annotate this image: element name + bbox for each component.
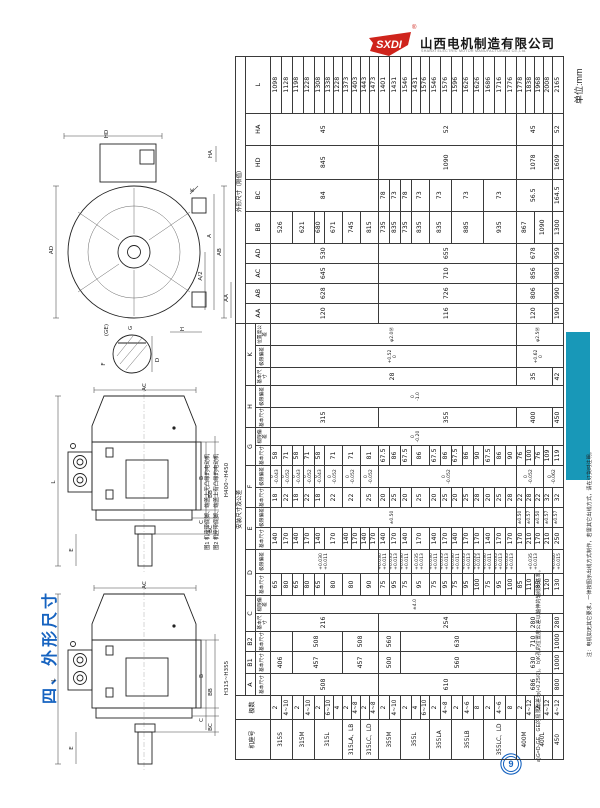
frame-size-cell: 315LC、LD — [361, 720, 379, 760]
frame-size-cell: 315L — [314, 720, 343, 760]
table-cell: 530 — [271, 243, 379, 263]
shaft — [138, 732, 152, 764]
table-cell: 140 — [271, 528, 282, 550]
poles-cell: 8 — [506, 696, 517, 720]
frame-size-cell: 355LB — [451, 720, 484, 760]
table-cell: 22 — [535, 488, 544, 508]
table-cell: 815 — [361, 211, 379, 243]
table-cell: 140 — [314, 528, 325, 550]
table-cell: 80 — [303, 574, 314, 596]
poles-cell: 4~8 — [352, 696, 361, 720]
table-cell: 1609 — [553, 145, 564, 179]
frame-size-cell: 355LC、LD — [484, 720, 517, 760]
front-view-drawing: HD AD HA K AB A A/2 AA H (GE) G F D — [44, 124, 236, 387]
poles-cell: 2 — [343, 696, 352, 720]
frame-size-cell: 355LA — [430, 720, 452, 760]
table-cell: 671 — [325, 211, 343, 243]
poles-cell: 4~6 — [462, 696, 473, 720]
company-name-en: SHANXI ELECTRIC MOTOR MANUFACTURING Co.,… — [421, 49, 527, 53]
dim-label-ac: AC — [142, 383, 148, 391]
table-cell: 73 — [484, 179, 517, 211]
poles-cell: 2 — [401, 696, 412, 720]
table-cell: 71 — [325, 446, 343, 466]
table-cell: 25 — [361, 488, 379, 508]
dimensions-table-area: 机座号极数安装尺寸及公差外形尺寸（限值）AB1B2CDEFGHKAAABACAD… — [235, 57, 532, 760]
table-cell: 170 — [517, 528, 526, 550]
table-cell: 1228 — [303, 56, 314, 113]
table-cell: 140 — [361, 528, 370, 550]
frame-size-cell: 315M — [292, 720, 314, 760]
table-cell: 120 — [544, 574, 553, 596]
table-cell: +0.035+0.013 — [506, 550, 517, 574]
header-cell: 基本尺寸 — [256, 488, 271, 508]
table-cell: 835 — [430, 211, 452, 243]
table-cell: 835 — [412, 211, 430, 243]
table-cell: 2165 — [553, 56, 564, 113]
poles-cell: 2 — [451, 696, 462, 720]
table-cell: 120 — [517, 303, 553, 323]
table-cell: 85 — [517, 574, 526, 596]
table-cell: 959 — [553, 243, 564, 263]
table-cell: 140 — [451, 528, 462, 550]
dim-label-c: C — [199, 718, 205, 722]
table-cell: 25 — [412, 488, 430, 508]
table-cell: 22 — [517, 488, 526, 508]
table-cell: ±0.50 — [535, 508, 544, 528]
table-cell: 109 — [544, 446, 553, 466]
dim-label-ge: (GE) — [104, 324, 110, 336]
table-cell: 745 — [343, 211, 361, 243]
table-cell: 86 — [390, 446, 401, 466]
table-cell: 0-0.043 — [314, 466, 325, 488]
table-cell: ±0.50 — [517, 508, 526, 528]
table-cell: 1000 — [553, 652, 564, 674]
header-cell: 基本尺寸 — [256, 446, 271, 466]
dim-label-a2: A/2 — [198, 271, 204, 280]
table-cell: 990 — [553, 283, 564, 303]
table-cell: +0.030+0.011 — [430, 550, 441, 574]
table-cell: 25 — [495, 488, 506, 508]
poles-cell: 4 — [334, 696, 343, 720]
dim-label-bc: BC — [208, 723, 214, 731]
table-cell: ±4.0 — [271, 596, 564, 614]
table-cell: 80 — [325, 574, 343, 596]
table-cell: 400 — [517, 408, 553, 428]
table-cell: 508 — [292, 632, 343, 652]
dim-label-l: L — [51, 678, 57, 682]
dim-label-e: E — [69, 746, 75, 750]
table-cell: 735 — [379, 211, 390, 243]
header-cell: 极限偏差 — [256, 346, 271, 368]
table-cell: 45 — [517, 113, 553, 145]
registered-mark: ® — [412, 25, 416, 31]
header-cell: AD — [246, 243, 271, 263]
table-cell: 90 — [506, 446, 517, 466]
dim-label-aa: AA — [224, 294, 230, 302]
table-cell: 500 — [379, 652, 401, 674]
table-cell: 73 — [430, 179, 452, 211]
table-cell: 67.5 — [484, 446, 495, 466]
figure-caption-1: 图1 机座带底脚、端盖上无凸缘的电动机 — [203, 454, 211, 550]
table-cell: 508 — [343, 632, 379, 652]
header-cell: 安装尺寸及公差 — [236, 323, 246, 695]
table-cell: 95 — [495, 574, 506, 596]
table-cell: 1778 — [517, 56, 526, 113]
table-cell: 406 — [271, 652, 293, 674]
table-cell: 73 — [412, 179, 430, 211]
table-cell: 58 — [271, 446, 282, 466]
table-cell: 560 — [401, 652, 517, 674]
frame-range-label: H400~H450 — [224, 462, 230, 497]
table-cell: +0.520 — [271, 346, 517, 368]
frame-range-label: H315~H355 — [224, 660, 230, 695]
table-cell: 254 — [379, 614, 517, 632]
table-cell: 1716 — [495, 56, 506, 113]
table-cell: 119 — [553, 446, 564, 466]
table-cell: 1403 — [352, 56, 361, 113]
poles-cell: 6~10 — [421, 696, 430, 720]
table-cell: 28 — [526, 488, 535, 508]
table-cell: 1431 — [390, 56, 401, 113]
header-cell: L — [246, 56, 271, 113]
poles-cell: 2 — [484, 696, 495, 720]
table-cell: +0.035+0.013 — [440, 550, 451, 574]
table-cell: 210 — [544, 528, 553, 550]
table-cell: φ2.5Ⓜ — [517, 323, 564, 345]
table-cell: +0.035+0.013 — [495, 550, 506, 574]
table-cell — [271, 632, 293, 652]
foot-pad — [192, 198, 206, 213]
table-cell: 35 — [517, 368, 553, 386]
catalog-page: SXDI ® 山西电机制造有限公司 SHANXI ELECTRIC MOTOR … — [0, 0, 600, 808]
table-cell: 655 — [379, 243, 517, 263]
poles-cell: 2 — [430, 696, 441, 720]
table-cell: 1373 — [343, 56, 352, 113]
dim-label-l: L — [51, 480, 57, 484]
table-cell: 28 — [271, 368, 517, 386]
table-cell: 81 — [361, 446, 379, 466]
table-cell: 980 — [553, 263, 564, 283]
table-cell: 885 — [451, 211, 484, 243]
table-cell: 90 — [473, 446, 484, 466]
header-cell: 基本尺寸 — [256, 632, 271, 652]
table-cell: 75 — [451, 574, 462, 596]
table-cell: 1968 — [535, 56, 544, 113]
header-cell: 位置度公差 — [256, 323, 271, 345]
table-cell: 86 — [462, 446, 473, 466]
table-cell: 100 — [473, 574, 484, 596]
table-cell: 71 — [303, 446, 314, 466]
table-cell: 1473 — [370, 56, 379, 113]
table-cell: 20 — [430, 488, 441, 508]
poles-cell: 4~12 — [553, 696, 564, 720]
table-cell: 75 — [401, 574, 412, 596]
table-cell: 1626 — [473, 56, 484, 113]
frame-size-cell: 400M — [517, 720, 535, 760]
table-cell: 56.5 — [517, 179, 553, 211]
table-cell: 86 — [440, 446, 451, 466]
poles-cell: 4~10 — [281, 696, 292, 720]
frame-size-cell: 355M — [379, 720, 401, 760]
table-cell: 116 — [379, 303, 517, 323]
table-cell: 22 — [303, 488, 314, 508]
dim-label-f: F — [101, 362, 107, 365]
table-cell: 1576 — [440, 56, 451, 113]
table-cell: 628 — [271, 283, 379, 303]
table-cell: 18 — [271, 488, 282, 508]
table-cell: 78 — [379, 179, 390, 211]
table-cell: 170 — [352, 528, 361, 550]
poles-cell: 2 — [361, 696, 370, 720]
table-cell: 216 — [271, 614, 379, 632]
dim-label-ad: AD — [49, 246, 55, 254]
header-cell: 基本尺寸 — [256, 528, 271, 550]
table-cell: 1776 — [506, 56, 517, 113]
table-cell: 75 — [379, 574, 390, 596]
header-cell: BC — [246, 179, 271, 211]
table-cell: 67.5 — [379, 446, 390, 466]
header-cell: B2 — [246, 632, 256, 652]
table-cell: 65 — [292, 574, 303, 596]
header-cell: AB — [246, 283, 271, 303]
table-cell: +0.040+0.015 — [553, 550, 564, 574]
table-cell: ±0.57 — [526, 508, 535, 528]
table-cell: 22 — [281, 488, 292, 508]
table-cell: 170 — [462, 528, 473, 550]
table-cell: +0.035+0.013 — [473, 550, 484, 574]
table-cell: 52 — [379, 113, 517, 145]
poles-cell: 6~10 — [325, 696, 334, 720]
table-cell: 0-0.052 — [517, 466, 544, 488]
table-cell: 86 — [412, 446, 430, 466]
header-cell: F — [246, 466, 256, 508]
poles-cell: 2 — [271, 696, 282, 720]
table-cell: 1546 — [401, 56, 412, 113]
header-cell: 基本尺寸 — [256, 574, 271, 596]
table-cell: 75 — [484, 574, 495, 596]
table-cell: 190 — [553, 303, 564, 323]
table-cell: ±0.57 — [544, 508, 553, 528]
page-number: 9 — [508, 759, 513, 769]
table-cell: 73 — [390, 179, 401, 211]
header-cell: B1 — [246, 652, 256, 674]
table-cell: 2008 — [544, 56, 553, 113]
table-cell: 140 — [484, 528, 495, 550]
table-cell: 110 — [526, 574, 535, 596]
table-cell: 210 — [526, 528, 535, 550]
table-cell: 164.5 — [553, 179, 564, 211]
dim-label-hd: HD — [104, 130, 110, 139]
header-cell: G — [246, 428, 256, 466]
table-cell: 1838 — [526, 56, 535, 113]
poles-cell: 4~8 — [440, 696, 451, 720]
side-view-h315-drawing: AC L E B BB C BC H315~H355 — [46, 580, 238, 781]
dim-label-bb: BB — [208, 688, 214, 696]
table-cell: 645 — [271, 263, 379, 283]
table-cell: 18 — [314, 488, 325, 508]
table-cell: 1338 — [325, 56, 334, 113]
table-cell: 76 — [535, 446, 544, 466]
table-cell: 78 — [401, 179, 412, 211]
table-cell: 65 — [271, 574, 282, 596]
table-cell: 1443 — [361, 56, 370, 113]
table-cell: 95 — [440, 574, 451, 596]
table-cell: 140 — [343, 528, 352, 550]
header-cell: H — [246, 386, 256, 428]
table-cell: 45 — [271, 113, 379, 145]
table-cell: 32 — [553, 488, 564, 508]
unit-label: 单位:mm — [572, 69, 585, 105]
table-cell: 170 — [303, 528, 314, 550]
table-cell: 170 — [390, 528, 401, 550]
header-cell: BB — [246, 211, 271, 243]
table-cell: 170 — [535, 528, 544, 550]
header-cell: 极数 — [236, 696, 271, 720]
header-cell: AA — [246, 303, 271, 323]
table-cell: 867 — [517, 211, 535, 243]
table-cell: 250 — [553, 528, 564, 550]
table-cell: 0-0.043 — [271, 466, 282, 488]
table-cell: +0.030+0.011 — [271, 550, 379, 574]
table-cell: ±0.50 — [271, 508, 517, 528]
table-cell: 526 — [271, 211, 293, 243]
table-cell: 170 — [325, 528, 343, 550]
table-cell: 0-0.052 — [361, 466, 379, 488]
table-cell: 856 — [517, 263, 553, 283]
table-cell: 67.5 — [451, 446, 462, 466]
poles-cell: 4~10 — [390, 696, 401, 720]
table-cell: 610 — [379, 674, 517, 696]
dim-label-d: D — [155, 358, 161, 362]
table-cell: 0-0.052 — [325, 466, 343, 488]
table-cell: 315 — [271, 408, 379, 428]
poles-cell: 2 — [314, 696, 325, 720]
table-cell: 355 — [379, 408, 517, 428]
dim-label-g: G — [128, 326, 134, 330]
table-cell: 120 — [271, 303, 379, 323]
table-cell: 28 — [506, 488, 517, 508]
table-cell: 170 — [281, 528, 292, 550]
table-cell: 90 — [361, 574, 379, 596]
table-cell: 170 — [495, 528, 506, 550]
table-cell: 0-0.052 — [379, 466, 517, 488]
table-cell: 76 — [517, 446, 526, 466]
table-cell: 170 — [370, 528, 379, 550]
poles-cell: 4~12 — [526, 696, 535, 720]
table-cell: ±0.57 — [553, 508, 564, 528]
table-cell: 0-0.052 — [343, 466, 361, 488]
table-cell: 86 — [495, 446, 506, 466]
table-cell: +0.035+0.013 — [462, 550, 473, 574]
header-cell: 基本尺寸 — [256, 652, 271, 674]
terminal-box — [68, 452, 92, 492]
logo-mark-text: SXDI — [376, 39, 403, 51]
table-cell: 25 — [440, 488, 451, 508]
header-cell: 极限偏差 — [256, 386, 271, 408]
table-cell: 450 — [553, 408, 564, 428]
table-cell: 25 — [390, 488, 401, 508]
table-cell: 1686 — [484, 56, 495, 113]
header-cell: 极限偏差 — [256, 508, 271, 528]
header-cell: 极限偏差 — [256, 550, 271, 574]
table-cell: +0.030+0.011 — [401, 550, 412, 574]
table-cell: 0-0.062 — [544, 466, 564, 488]
poles-cell: 2 — [379, 696, 390, 720]
table-cell: 75 — [430, 574, 441, 596]
table-cell: +0.030+0.011 — [379, 550, 390, 574]
table-cell: 0-0.043 — [292, 466, 303, 488]
header-cell: C — [246, 596, 256, 632]
table-cell: 1596 — [451, 56, 462, 113]
table-cell: 28 — [473, 488, 484, 508]
table-cell: 84 — [271, 179, 379, 211]
header-cell: 基本尺寸 — [256, 408, 271, 428]
foot-pad — [192, 292, 206, 307]
table-cell: 32 — [544, 488, 553, 508]
header-cell: A — [246, 674, 256, 696]
table-cell: 726 — [379, 283, 517, 303]
table-cell: 560 — [379, 632, 401, 652]
table-cell: 22 — [343, 488, 361, 508]
table-cell: 630 — [401, 632, 517, 652]
table-cell: 835 — [390, 211, 401, 243]
table-cell: 0-0.052 — [303, 466, 314, 488]
table-cell: +0.030+0.011 — [451, 550, 462, 574]
dim-label-e: E — [69, 548, 75, 552]
table-cell: 170 — [473, 528, 484, 550]
table-cell: 67.5 — [430, 446, 441, 466]
header-cell: 基本尺寸 — [256, 674, 271, 696]
dimensions-table: 机座号极数安装尺寸及公差外形尺寸（限值）AB1B2CDEFGHKAAABACAD… — [235, 56, 564, 760]
table-cell: 710 — [379, 263, 517, 283]
table-cell: 845 — [271, 145, 379, 179]
table-cell: 25 — [462, 488, 473, 508]
table-cell: 1128 — [281, 56, 292, 113]
table-cell: 170 — [506, 528, 517, 550]
table-cell: 65 — [314, 574, 325, 596]
header-cell: 极限偏差 — [256, 466, 271, 488]
table-cell: 1090 — [379, 145, 517, 179]
table-cell: 1090 — [535, 211, 553, 243]
table-cell: 140 — [430, 528, 441, 550]
figure-caption-2: 图2 机座带底脚、端盖上有凸缘的电动机 — [212, 454, 220, 550]
table-cell: 58 — [292, 446, 303, 466]
dim-label-ac: AC — [142, 581, 148, 589]
table-cell: 735 — [401, 211, 412, 243]
frame-size-cell: 315LA、LB — [343, 720, 361, 760]
table-cell: 1431 — [412, 56, 421, 113]
table-cell: 170 — [412, 528, 430, 550]
header-cell: HA — [246, 113, 271, 145]
table-cell: 1401 — [379, 56, 390, 113]
table-cell: 678 — [517, 243, 553, 263]
table-cell: 1308 — [314, 56, 325, 113]
table-cell: 20 — [379, 488, 390, 508]
table-cell: 1198 — [292, 56, 303, 113]
order-note: 注：电机如无其它要求，一律按图示出线方式制作，若需其它出线方式，请在订货时注明。 — [586, 449, 593, 657]
table-cell: 52 — [553, 113, 564, 145]
poles-cell: 2 — [517, 696, 526, 720]
poles-cell: 4~6 — [495, 696, 506, 720]
header-cell: 基本尺寸 — [256, 614, 271, 632]
table-cell: 621 — [292, 211, 314, 243]
dim-label-b: B — [199, 674, 205, 678]
table-cell: 0-0.20 — [271, 428, 564, 446]
table-cell: +0.035+0.013 — [390, 550, 401, 574]
table-cell: 935 — [484, 211, 517, 243]
table-cell: +0.030+0.011 — [484, 550, 495, 574]
shaft — [138, 534, 152, 566]
